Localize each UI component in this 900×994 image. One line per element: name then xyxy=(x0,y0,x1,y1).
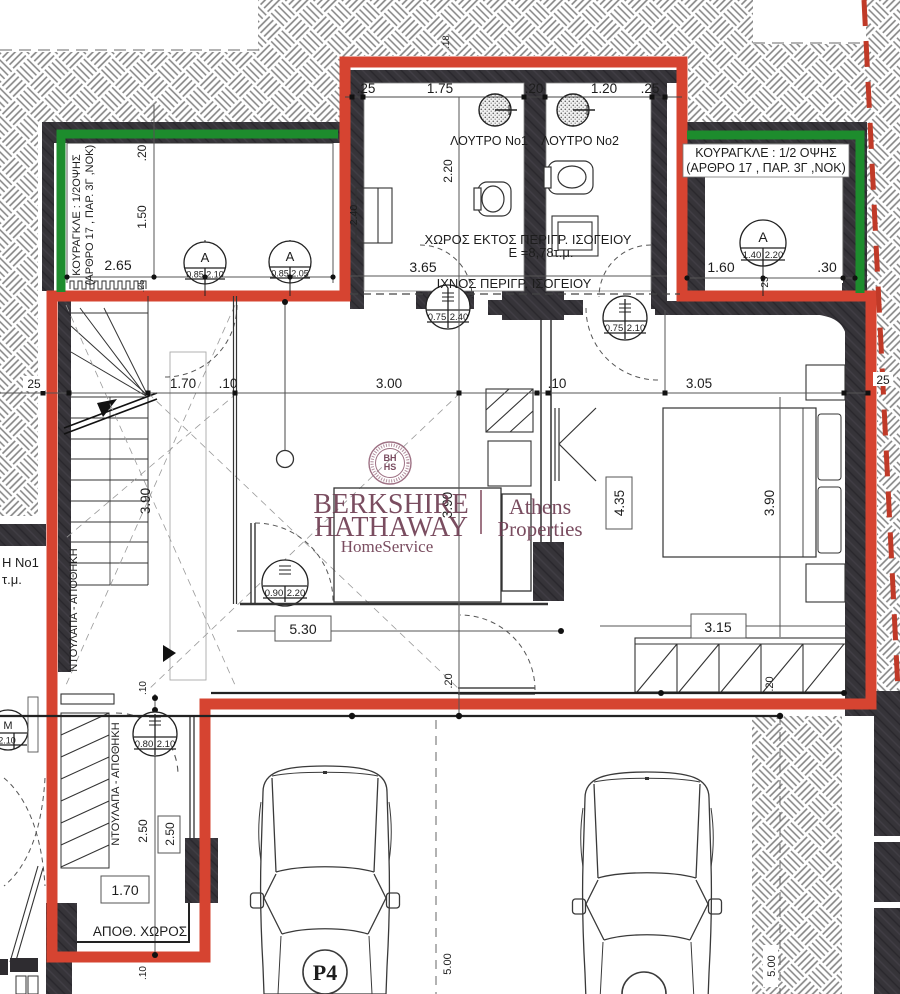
svg-text:ΚΟΥΡΑΓΚΛΕ : 1/2ΟΨΗΣ: ΚΟΥΡΑΓΚΛΕ : 1/2ΟΨΗΣ xyxy=(71,154,83,276)
svg-text:.10: .10 xyxy=(138,966,149,980)
svg-text:1.20: 1.20 xyxy=(591,81,617,96)
svg-text:0.80: 0.80 xyxy=(135,739,154,750)
svg-text:3.05: 3.05 xyxy=(686,376,712,391)
svg-text:1.75: 1.75 xyxy=(427,81,453,96)
svg-text:.10: .10 xyxy=(138,681,149,695)
svg-text:.25: .25 xyxy=(641,81,660,96)
svg-text:4.35: 4.35 xyxy=(612,490,627,516)
svg-text:25: 25 xyxy=(27,377,41,391)
svg-text:A: A xyxy=(286,249,295,264)
svg-text:2.20: 2.20 xyxy=(441,159,455,183)
svg-text:1.40: 1.40 xyxy=(743,250,762,261)
svg-text:2.20: 2.20 xyxy=(765,250,784,261)
svg-text:0.75: 0.75 xyxy=(428,312,447,323)
svg-text:1.50: 1.50 xyxy=(135,205,149,229)
svg-text:.25: .25 xyxy=(136,280,146,293)
svg-text:A: A xyxy=(201,250,210,265)
svg-text:25: 25 xyxy=(876,373,890,387)
svg-text:3.65: 3.65 xyxy=(409,259,436,275)
svg-text:2.10: 2.10 xyxy=(0,736,16,746)
svg-text:25: 25 xyxy=(760,276,771,288)
svg-text:(ΑΡΘΡΟ 17 , ΠΑΡ. 3Γ ,ΝΟΚ): (ΑΡΘΡΟ 17 , ΠΑΡ. 3Γ ,ΝΟΚ) xyxy=(84,145,96,285)
svg-text:P4: P4 xyxy=(313,960,337,985)
svg-text:3.90: 3.90 xyxy=(138,488,153,514)
svg-text:2.20: 2.20 xyxy=(287,588,306,599)
svg-text:.10: .10 xyxy=(219,376,238,391)
svg-text:τ.μ.: τ.μ. xyxy=(2,572,22,587)
svg-text:0.75: 0.75 xyxy=(605,323,624,334)
svg-text:0.85: 0.85 xyxy=(186,270,204,280)
svg-text:5.30: 5.30 xyxy=(289,621,316,637)
svg-text:ΚΟΥΡΑΓΚΛΕ : 1/2 ΟΨΗΣ: ΚΟΥΡΑΓΚΛΕ : 1/2 ΟΨΗΣ xyxy=(695,146,837,160)
svg-text:0.85: 0.85 xyxy=(271,269,289,279)
svg-text:3.15: 3.15 xyxy=(704,619,731,635)
svg-text:.10: .10 xyxy=(548,376,567,391)
svg-text:M: M xyxy=(3,720,12,732)
svg-text:3.00: 3.00 xyxy=(376,376,402,391)
svg-text:2.40: 2.40 xyxy=(348,205,360,226)
svg-text:(ΑΡΘΡΟ 17 , ΠΑΡ. 3Γ ,ΝΟΚ): (ΑΡΘΡΟ 17 , ΠΑΡ. 3Γ ,ΝΟΚ) xyxy=(686,161,846,175)
svg-text:Η Νο1: Η Νο1 xyxy=(2,555,39,570)
svg-text:HomeService: HomeService xyxy=(341,537,434,556)
svg-text:ΝΤΟΥΛΑΠΑ - ΑΠΟΘΗΚΗ: ΝΤΟΥΛΑΠΑ - ΑΠΟΘΗΚΗ xyxy=(110,722,122,845)
svg-text:5.00: 5.00 xyxy=(766,955,778,976)
svg-text:ΛΟΥΤΡΟ Νο2: ΛΟΥΤΡΟ Νο2 xyxy=(541,134,619,148)
svg-text:2.10: 2.10 xyxy=(627,323,646,334)
svg-text:ΑΠΟΘ. ΧΩΡΟΣ: ΑΠΟΘ. ΧΩΡΟΣ xyxy=(93,924,187,939)
svg-text:Ε =8,78τ.μ.: Ε =8,78τ.μ. xyxy=(508,245,573,260)
svg-text:2.10: 2.10 xyxy=(157,739,176,750)
svg-text:1.60: 1.60 xyxy=(707,259,734,275)
svg-text:2.65: 2.65 xyxy=(104,257,131,273)
svg-text:Athens: Athens xyxy=(509,494,571,519)
svg-text:2.05: 2.05 xyxy=(291,269,309,279)
svg-text:.20: .20 xyxy=(764,676,776,691)
svg-text:.18: .18 xyxy=(441,35,452,48)
svg-text:5.00: 5.00 xyxy=(442,953,454,974)
svg-text:2.50: 2.50 xyxy=(136,819,150,843)
svg-text:ΛΟΥΤΡΟ Νο1: ΛΟΥΤΡΟ Νο1 xyxy=(450,134,528,148)
svg-text:HS: HS xyxy=(384,462,397,472)
svg-text:1.70: 1.70 xyxy=(111,882,138,898)
svg-text:.20: .20 xyxy=(443,673,455,688)
svg-text:2.10: 2.10 xyxy=(206,270,224,280)
svg-text:1.70: 1.70 xyxy=(170,376,196,391)
svg-text:.20: .20 xyxy=(525,81,544,96)
svg-text:0.90: 0.90 xyxy=(265,588,284,599)
svg-text:.30: .30 xyxy=(817,259,837,275)
svg-text:Properties: Properties xyxy=(497,517,582,541)
svg-text:2.50: 2.50 xyxy=(163,822,177,846)
svg-text:A: A xyxy=(758,229,768,245)
svg-text:ΙΧΝΟΣ ΠΕΡΙΓΡ. ΙΣΟΓΕΙΟΥ: ΙΧΝΟΣ ΠΕΡΙΓΡ. ΙΣΟΓΕΙΟΥ xyxy=(437,276,592,291)
svg-text:ΝΤΟΥΛΑΠΑ - ΑΠΟΘΗΚΗ: ΝΤΟΥΛΑΠΑ - ΑΠΟΘΗΚΗ xyxy=(68,548,80,671)
svg-text:.20: .20 xyxy=(135,144,149,161)
svg-text:3.90: 3.90 xyxy=(762,490,777,516)
svg-text:.25: .25 xyxy=(357,81,376,96)
